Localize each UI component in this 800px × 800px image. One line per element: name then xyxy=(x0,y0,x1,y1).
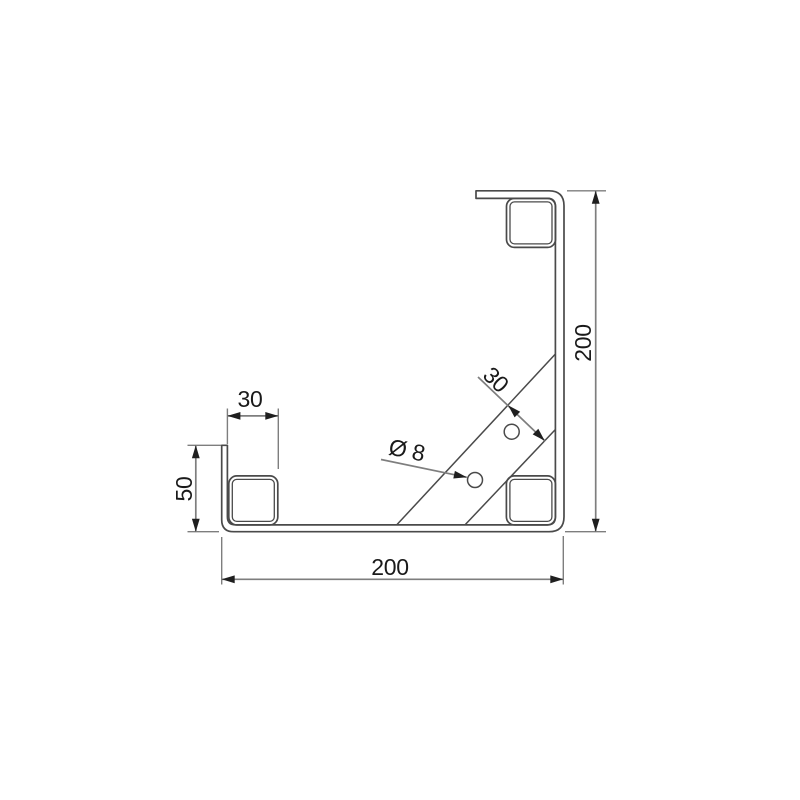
tube-section-bottom-right-outer xyxy=(506,476,555,525)
tube-section-bottom-left-inner xyxy=(232,479,274,521)
dim-hole-diameter: Ø 8 xyxy=(381,434,467,479)
dim-label-brace-width: 30 xyxy=(478,361,514,397)
dim-lip-height: 50 xyxy=(171,445,221,531)
dim-label-height-right: 200 xyxy=(570,324,596,361)
arrowhead-left xyxy=(222,575,235,583)
tube-section-bottom-right xyxy=(506,476,555,525)
arrowhead-right xyxy=(550,575,563,583)
tube-section-top-inner xyxy=(510,202,552,244)
tube-section-bottom-right-inner xyxy=(510,479,552,521)
arrowhead-down xyxy=(592,519,600,532)
hole-upper xyxy=(504,424,519,439)
tube-section-top-outer xyxy=(507,198,556,247)
dim-label-tube-width: 30 xyxy=(238,386,263,412)
drawing-canvas: 200 200 50 30 30 Ø 8 xyxy=(0,0,800,800)
arrowhead-up xyxy=(192,445,200,458)
dim-label-lip-height: 50 xyxy=(171,477,197,502)
dim-width-bottom: 200 xyxy=(222,536,564,585)
arrowhead-down xyxy=(192,519,200,532)
technical-drawing: 200 200 50 30 30 Ø 8 xyxy=(0,0,800,800)
dim-label-width-bottom: 200 xyxy=(371,554,408,580)
hole-lower xyxy=(468,473,483,488)
arrowhead-up xyxy=(592,191,600,204)
tube-section-bottom-left xyxy=(229,476,278,525)
bracket-part xyxy=(222,191,564,532)
dim-tube-width: 30 xyxy=(227,386,278,469)
dim-height-right: 200 xyxy=(565,191,606,532)
tube-section-top xyxy=(507,198,556,247)
arrowhead-left xyxy=(227,412,240,420)
arrowhead-leader xyxy=(453,471,467,479)
tube-section-bottom-left-outer xyxy=(229,476,278,525)
arrowhead-right xyxy=(265,412,278,420)
